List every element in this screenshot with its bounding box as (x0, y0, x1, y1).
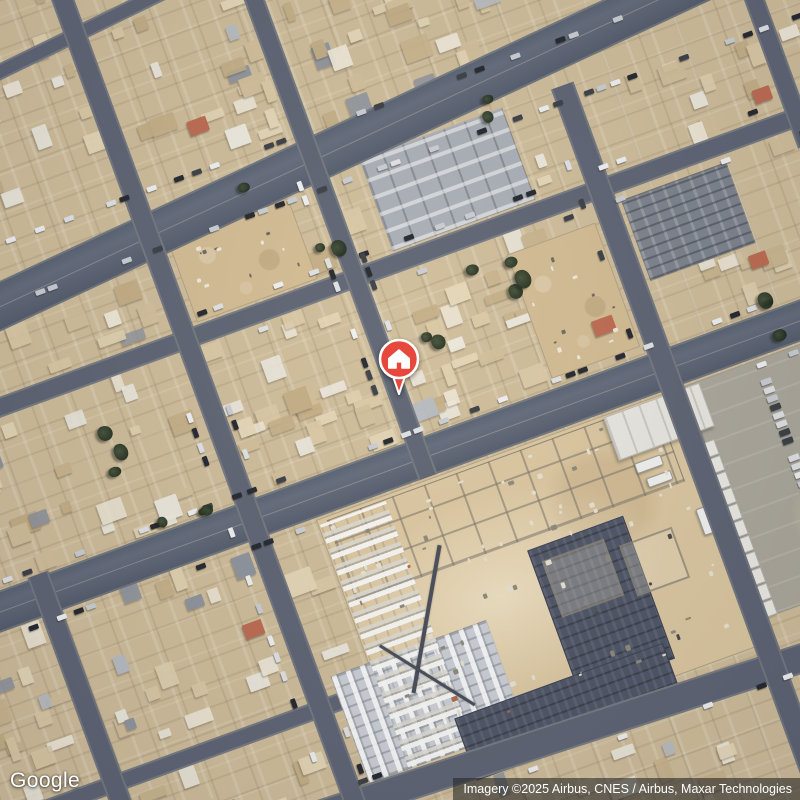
google-logo[interactable]: Google (10, 769, 80, 793)
imagery-attribution: Imagery ©2025 Airbus, CNES / Airbus, Max… (453, 778, 800, 800)
home-pin-icon (376, 337, 422, 399)
satellite-map[interactable]: Google Imagery ©2025 Airbus, CNES / Airb… (0, 0, 800, 800)
home-place-marker[interactable] (376, 337, 422, 404)
